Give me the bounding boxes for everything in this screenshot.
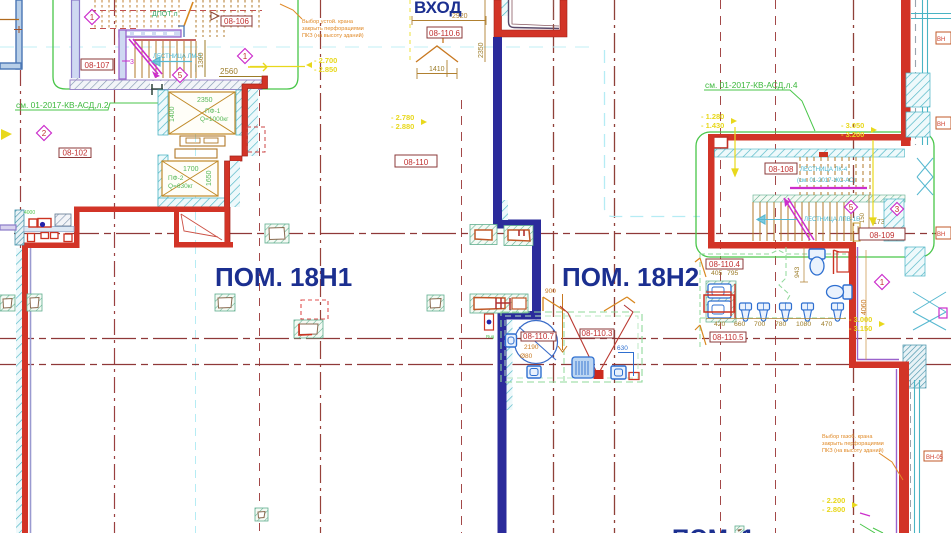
svg-text:08-110.6: 08-110.6	[429, 29, 461, 38]
svg-text:08-106: 08-106	[224, 17, 249, 26]
svg-text:1410: 1410	[429, 66, 445, 73]
svg-text:2560: 2560	[220, 67, 238, 76]
svg-text:08-107: 08-107	[85, 61, 110, 70]
svg-text:3: 3	[895, 205, 900, 214]
svg-text:ЛЕСТНИЦА ЛК-4: ЛЕСТНИЦА ЛК-4	[800, 167, 848, 173]
svg-text:08-110: 08-110	[404, 158, 429, 167]
svg-text:3: 3	[130, 59, 134, 66]
svg-text:795: 795	[727, 270, 739, 277]
svg-text:ПКЗ (на высоту зданий): ПКЗ (на высоту зданий)	[302, 32, 364, 39]
svg-text:1400: 1400	[169, 106, 176, 122]
svg-text:закрыть перфорациями: закрыть перфорациями	[302, 26, 364, 32]
svg-text:420: 420	[714, 321, 726, 328]
svg-text:08-110.7: 08-110.7	[523, 332, 555, 341]
svg-text:- 3.050: - 3.050	[841, 121, 864, 130]
svg-text:- 2.800: - 2.800	[822, 505, 845, 514]
svg-text:4060: 4060	[861, 299, 868, 315]
svg-text:ВН: ВН	[937, 232, 945, 238]
svg-text:08-110.4: 08-110.4	[709, 260, 741, 269]
svg-text:ПФ-2: ПФ-2	[168, 175, 184, 182]
svg-text:ПКЗ (на высоту зданий): ПКЗ (на высоту зданий)	[822, 447, 884, 454]
svg-text:см. 01-2017-КВ-АСД,л.4: см. 01-2017-КВ-АСД,л.4	[705, 80, 798, 90]
svg-text:2190: 2190	[524, 344, 539, 351]
svg-text:2350: 2350	[478, 42, 485, 58]
svg-text:405: 405	[711, 270, 723, 277]
svg-text:Выбор газоб. крана: Выбор газоб. крана	[822, 434, 873, 440]
svg-text:08-110.5: 08-110.5	[713, 333, 745, 342]
svg-text:(см. 01-2017-ЖС-АС): (см. 01-2017-ЖС-АС)	[797, 178, 855, 184]
svg-text:4000: 4000	[24, 210, 35, 216]
svg-text:- 2.700: - 2.700	[314, 56, 337, 65]
svg-text:470: 470	[821, 321, 833, 328]
svg-text:1: 1	[90, 13, 95, 22]
svg-text:1360: 1360	[198, 52, 205, 68]
svg-text:150: 150	[860, 212, 866, 223]
svg-text:5: 5	[178, 71, 183, 80]
svg-text:- 2.780: - 2.780	[391, 113, 414, 122]
svg-text:943: 943	[794, 266, 801, 278]
svg-text:ЛЕСТНИЦА ЛМ-1: ЛЕСТНИЦА ЛМ-1	[153, 54, 202, 60]
svg-text:08-102: 08-102	[63, 149, 88, 158]
svg-text:ПОМ. 18Н1: ПОМ. 18Н1	[215, 262, 352, 292]
svg-text:660: 660	[734, 321, 746, 328]
svg-text:Выбор устой. крана: Выбор устой. крана	[302, 18, 354, 25]
svg-text:Ø80: Ø80	[520, 353, 533, 360]
svg-text:1700: 1700	[183, 166, 199, 173]
svg-text:- 1.430: - 1.430	[701, 121, 724, 130]
svg-text:ЛЕСТНИЦА ЛПВ-1Б: ЛЕСТНИЦА ЛПВ-1Б	[804, 217, 860, 223]
svg-text:ПФ-1: ПФ-1	[205, 108, 221, 115]
svg-text:1: 1	[880, 278, 885, 287]
svg-text:- 3.000: - 3.000	[849, 315, 872, 324]
svg-text:ПОМ. 1: ПОМ. 1	[672, 525, 755, 533]
svg-text:- 2.850: - 2.850	[314, 65, 337, 74]
svg-text:ПОМ. 18Н2: ПОМ. 18Н2	[562, 262, 699, 292]
svg-text:ВХОД: ВХОД	[414, 0, 462, 17]
svg-text:1: 1	[243, 52, 248, 61]
svg-text:700: 700	[754, 321, 766, 328]
svg-text:ВН-05: ВН-05	[926, 455, 944, 461]
svg-text:ДПОТ л: ДПОТ л	[152, 11, 178, 18]
svg-text:ВН: ВН	[937, 122, 945, 128]
svg-text:08-110.3: 08-110.3	[582, 329, 614, 338]
svg-text:Q=630кг: Q=630кг	[168, 183, 194, 190]
svg-text:630: 630	[617, 345, 628, 352]
svg-text:900: 900	[545, 288, 556, 295]
svg-text:закрыть перфорациями: закрыть перфорациями	[822, 441, 884, 447]
svg-text:08-109: 08-109	[870, 231, 895, 240]
svg-text:- 2.880: - 2.880	[391, 122, 414, 131]
svg-text:Q=1000кг: Q=1000кг	[200, 116, 229, 123]
svg-text:5: 5	[849, 203, 854, 212]
svg-text:780: 780	[775, 321, 787, 328]
svg-text:- 1.280: - 1.280	[701, 112, 724, 121]
svg-text:2: 2	[42, 129, 47, 138]
svg-text:- 3.200: - 3.200	[841, 130, 864, 139]
svg-text:1650: 1650	[206, 170, 213, 186]
svg-text:08-108: 08-108	[769, 165, 794, 174]
svg-text:2350: 2350	[197, 97, 213, 104]
svg-text:- 3.150: - 3.150	[849, 324, 872, 333]
svg-text:1080: 1080	[796, 321, 811, 328]
svg-text:Rug: Rug	[486, 334, 495, 339]
svg-text:см. 01-2017-КВ-АСД,л.2: см. 01-2017-КВ-АСД,л.2	[16, 100, 109, 110]
svg-text:ВН: ВН	[937, 37, 945, 43]
svg-text:- 2.200: - 2.200	[822, 496, 845, 505]
